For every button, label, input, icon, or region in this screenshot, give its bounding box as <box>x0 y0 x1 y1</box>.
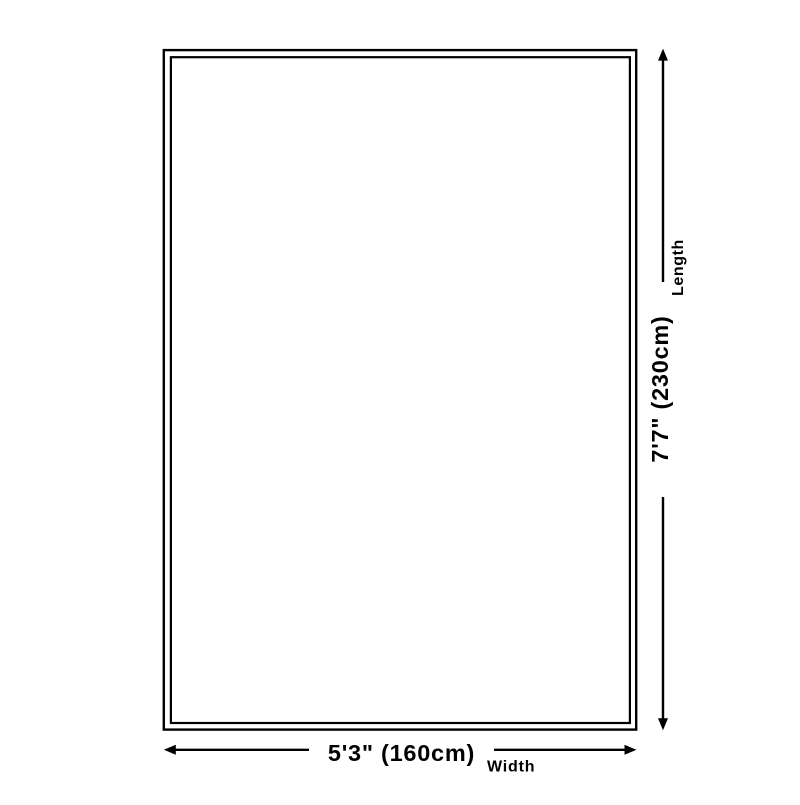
svg-text:7'7" (230cm): 7'7" (230cm) <box>647 315 673 462</box>
svg-text:Length: Length <box>670 239 687 296</box>
svg-text:Width: Width <box>487 759 535 776</box>
svg-text:5'3" (160cm): 5'3" (160cm) <box>328 740 475 766</box>
